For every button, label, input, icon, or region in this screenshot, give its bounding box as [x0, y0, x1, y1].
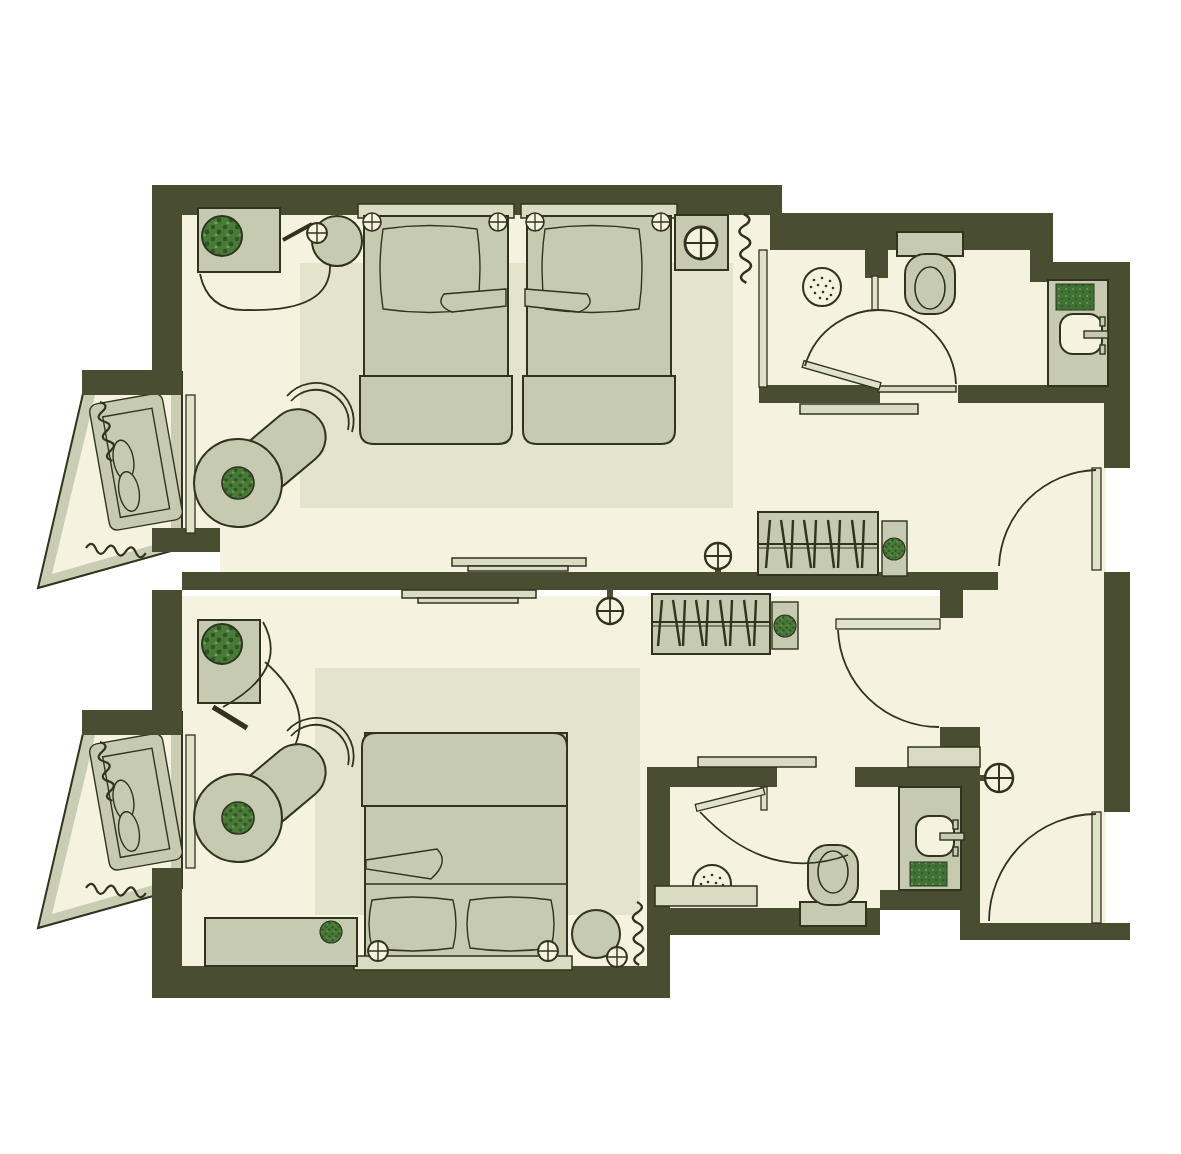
toilet — [897, 232, 963, 314]
desk-plant-icon — [202, 624, 242, 664]
stool-lamp-icon — [607, 947, 627, 967]
balcony-top — [38, 372, 184, 588]
entry-lamp-icon — [985, 764, 1013, 792]
entrance-door-leaf — [1092, 812, 1101, 923]
bathroom-top-glass-wall — [759, 250, 767, 387]
lamp-stem — [607, 588, 613, 598]
headboard — [354, 956, 572, 970]
entrance-door-leaf — [1092, 468, 1101, 570]
bench-plant-icon — [320, 921, 342, 943]
chair-lamp-icon — [307, 223, 327, 243]
stand-plant-icon — [883, 538, 905, 560]
bed-lamp-icon — [652, 213, 670, 231]
toilet — [800, 845, 866, 926]
faucet — [940, 833, 964, 840]
toilet-seat — [808, 845, 858, 905]
floor-vestibule — [963, 572, 1106, 923]
desk-plant-icon — [202, 216, 242, 256]
tap-knob — [1100, 317, 1105, 326]
table-plant-icon — [222, 467, 254, 499]
bed-lamp-icon — [363, 213, 381, 231]
wall-tv — [402, 590, 536, 598]
entry-shelf — [908, 747, 980, 767]
bed-lamp-icon — [538, 941, 558, 961]
tap-knob — [953, 847, 958, 856]
foot-duvet — [360, 376, 512, 444]
stand-plant-icon — [774, 615, 796, 637]
tap-knob — [953, 820, 958, 829]
balcony-window-bottom — [186, 735, 195, 868]
tap-knob — [1100, 345, 1105, 354]
twin-bed-1 — [358, 204, 514, 444]
floor-plan-canvas — [0, 0, 1181, 1154]
wall-tv-stand — [418, 598, 518, 603]
twin-bed-2 — [521, 204, 677, 444]
foot-duvet — [523, 376, 675, 444]
floor-plan-page — [0, 0, 1181, 1154]
table-plant-icon — [222, 802, 254, 834]
wardrobe — [758, 512, 878, 575]
vanity — [899, 787, 964, 890]
balcony-window-top — [186, 395, 195, 533]
wall-tv — [452, 558, 586, 566]
wall-lamp-icon — [597, 598, 623, 624]
interior-door-leaf — [836, 619, 940, 629]
bed-lamp-icon — [526, 213, 544, 231]
top-shelf — [698, 757, 816, 767]
wall-tv-stand — [468, 566, 568, 571]
nightstand-lamp-icon — [685, 227, 717, 259]
towel — [1056, 284, 1094, 310]
luggage-shelf — [800, 404, 918, 414]
toilet-seat — [905, 254, 955, 314]
vanity — [1048, 280, 1108, 386]
bathroom-top-glass-stub — [872, 276, 878, 310]
wall-lamp-icon — [705, 543, 731, 569]
bed-lamp-icon — [489, 213, 507, 231]
towel — [910, 862, 947, 886]
shower-head-icon — [803, 268, 841, 306]
foot-duvet — [362, 733, 567, 806]
shower-bench — [655, 886, 757, 906]
bed-lamp-icon — [368, 941, 388, 961]
faucet — [1084, 331, 1108, 338]
double-bed — [354, 733, 572, 970]
wardrobe — [652, 594, 770, 654]
toilet-tank — [897, 232, 963, 256]
door-sill — [878, 386, 956, 392]
